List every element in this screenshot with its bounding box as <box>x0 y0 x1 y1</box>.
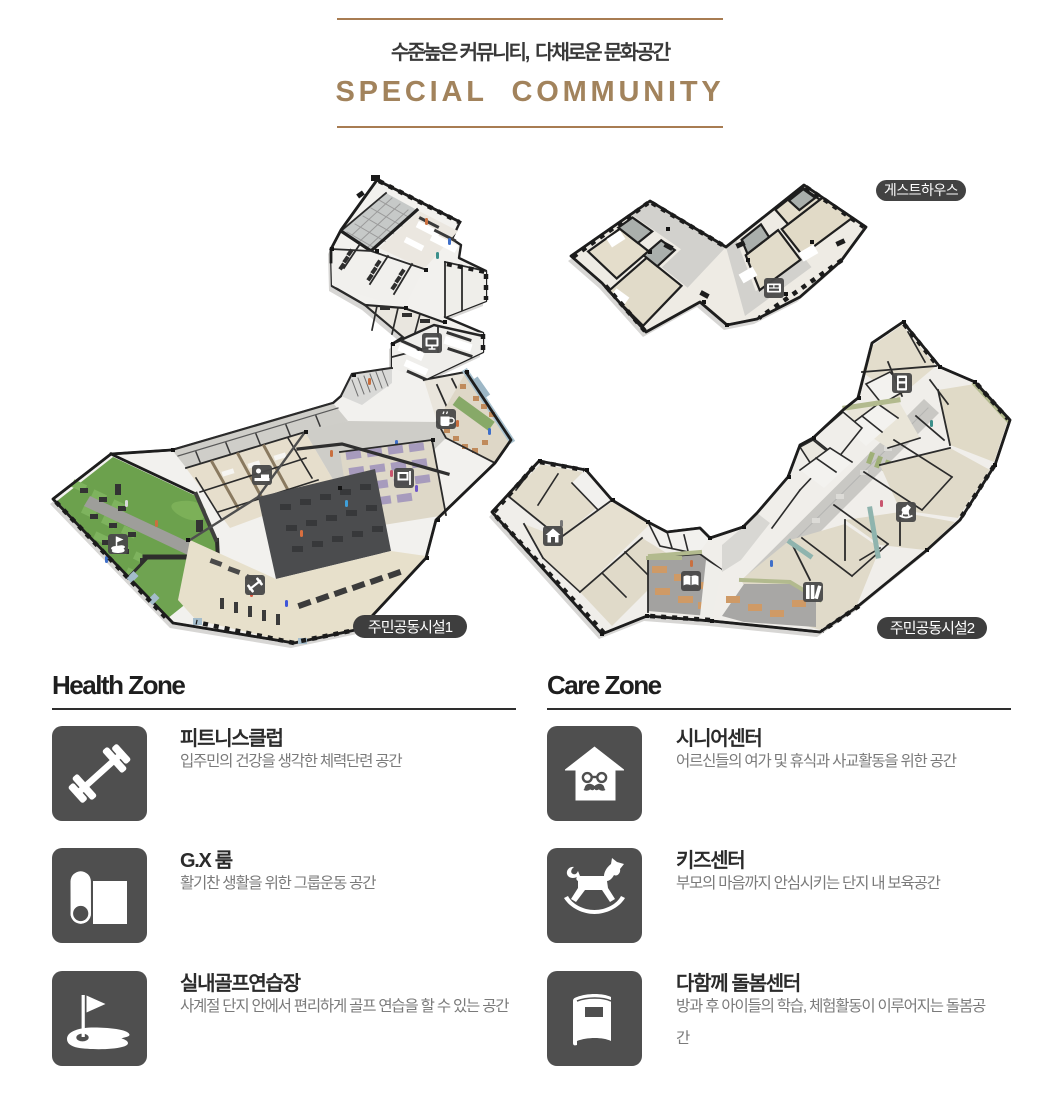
svg-text:주민공동시설2: 주민공동시설2 <box>890 620 975 637</box>
svg-text:게스트하우스: 게스트하우스 <box>884 182 959 198</box>
svg-text:주민공동시설1: 주민공동시설1 <box>368 619 453 636</box>
